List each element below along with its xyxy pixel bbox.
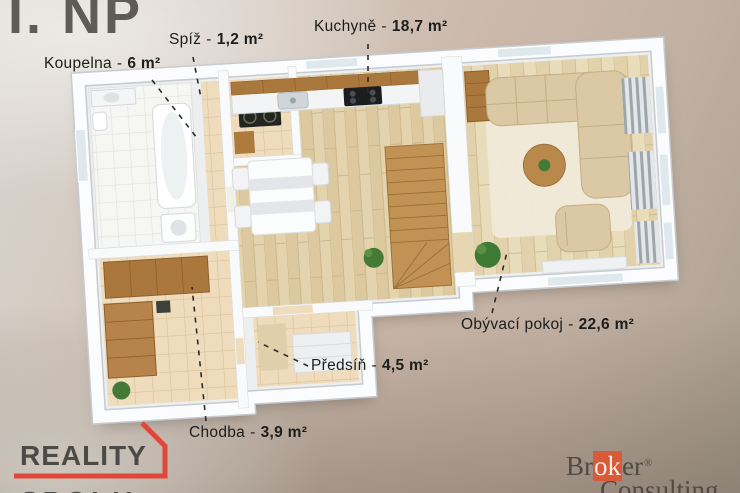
room-area: 22,6 m² <box>579 316 635 333</box>
room-label-spiz: Spíž-1,2 m² <box>169 31 263 49</box>
door-mat <box>258 323 289 371</box>
chair <box>234 205 251 228</box>
floorplan-image: I. NP Koupelna-6 m² Spíž-1,2 m² Kuchyně-… <box>0 0 740 493</box>
curtain <box>634 220 661 263</box>
pantry-shelf <box>234 131 255 154</box>
room-area: 3,9 m² <box>261 424 308 441</box>
room-area: 6 m² <box>127 55 160 72</box>
chair <box>314 200 331 223</box>
toilet <box>92 112 107 131</box>
room-label-kuchyne: Kuchyně-18,7 m² <box>314 18 447 36</box>
reality-spolu-wordmark-2: SPOLU <box>20 486 136 493</box>
registered-mark: ® <box>644 457 652 469</box>
room-name: Koupelna <box>44 55 112 72</box>
reality-spolu-wordmark: REALITY <box>20 440 147 472</box>
room-area: 1,2 m² <box>217 31 264 48</box>
printer <box>156 300 171 313</box>
room-name: Předsíň <box>311 357 367 374</box>
chair <box>312 162 329 185</box>
room-area: 18,7 m² <box>392 18 448 35</box>
curtain <box>628 151 657 210</box>
chair <box>232 167 249 190</box>
room-name: Chodba <box>189 424 245 441</box>
reality-spolu-logo: REALITY SPOLU <box>10 410 190 493</box>
curtain <box>621 77 652 135</box>
armchair <box>555 203 612 252</box>
broker-consulting-logo: Broker® Consulting <box>566 449 719 493</box>
room-name: Kuchyně <box>314 18 376 35</box>
room-area: 4,5 m² <box>382 357 429 374</box>
room-label-chodba: Chodba-3,9 m² <box>189 424 307 442</box>
fridge <box>418 69 445 116</box>
room-label-predsin: Předsíň-4,5 m² <box>311 357 429 375</box>
floor-title: I. NP <box>8 0 143 46</box>
cooktop <box>343 86 382 106</box>
room-label-obyvaci-pokoj: Obývací pokoj-22,6 m² <box>461 316 634 334</box>
dining-table <box>248 157 316 235</box>
room-name: Spíž <box>169 31 201 48</box>
room-label-koupelna: Koupelna-6 m² <box>44 55 160 73</box>
room-name: Obývací pokoj <box>461 316 563 333</box>
consulting-wordmark: Consulting <box>600 476 719 493</box>
